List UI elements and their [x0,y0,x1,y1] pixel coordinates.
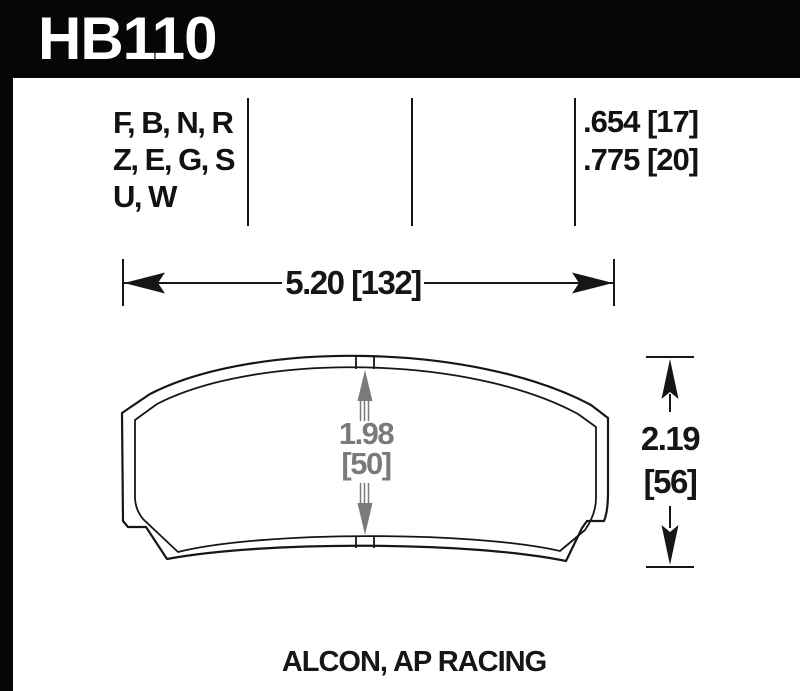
pad-dimension-drawing: 5.20 [132] 1.98 [50] [0,0,800,691]
brake-pad-spec-sheet: HB110 F, B, N, R Z, E, G, S U, W .654 [1… [0,0,800,691]
overall-height-dimension: 2.19 [56] [641,357,700,567]
width-dimension: 5.20 [132] [123,259,614,306]
overall-height-inches: 2.19 [641,420,700,457]
overall-height-mm: [56] [644,463,697,500]
down-arrowhead-gray-icon [358,503,373,535]
up-arrowhead-gray-icon [358,370,373,401]
caliper-applications-label: ALCON, AP RACING [282,646,546,678]
width-dimension-label: 5.20 [132] [285,264,421,301]
friction-height-dimension: 1.98 [50] [339,370,395,535]
down-arrowhead-icon [662,525,679,565]
friction-height-mm: [50] [341,446,390,481]
up-arrowhead-icon [662,359,679,399]
